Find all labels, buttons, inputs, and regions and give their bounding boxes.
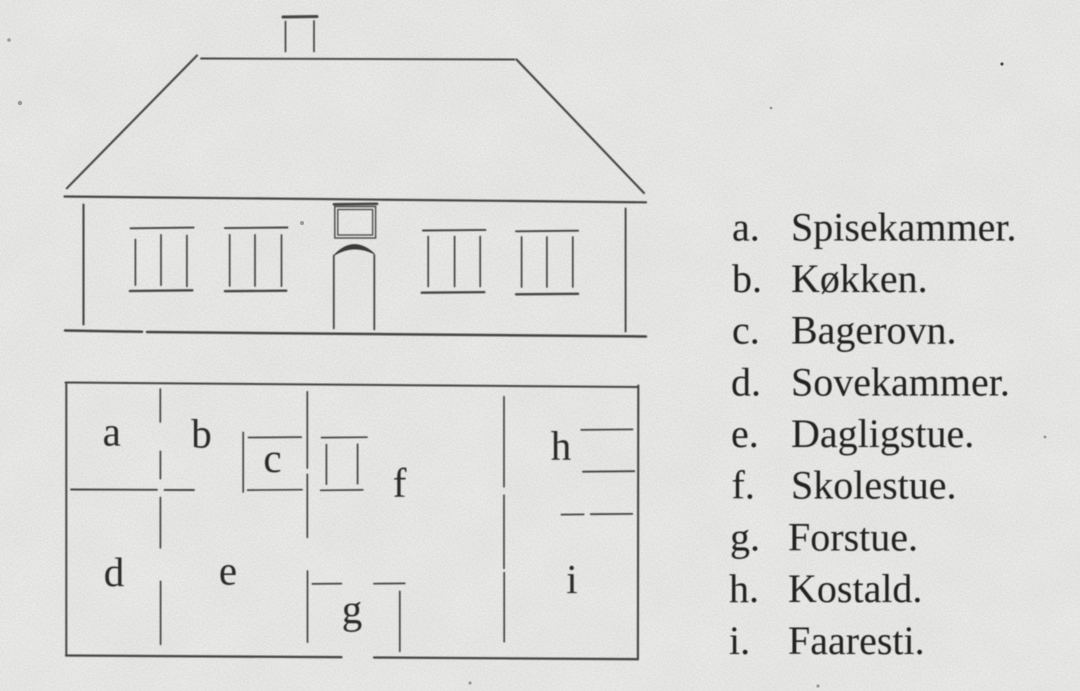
svg-text:h.: h.: [729, 566, 759, 611]
svg-text:b: b: [191, 410, 212, 456]
svg-text:c: c: [263, 435, 281, 481]
svg-text:i: i: [566, 556, 577, 602]
svg-text:f: f: [393, 460, 407, 506]
svg-text:Kostald.: Kostald.: [788, 566, 922, 611]
svg-text:Faaresti.: Faaresti.: [788, 618, 925, 663]
svg-text:g: g: [342, 586, 363, 632]
svg-text:c.: c.: [732, 308, 760, 353]
svg-text:e: e: [219, 547, 237, 593]
svg-text:b.: b.: [732, 256, 762, 301]
svg-text:Sovekammer.: Sovekammer.: [791, 359, 1010, 404]
svg-text:Forstue.: Forstue.: [788, 515, 918, 560]
svg-text:Bagerovn.: Bagerovn.: [791, 308, 957, 353]
svg-text:h: h: [551, 423, 572, 469]
svg-text:a: a: [103, 409, 121, 455]
svg-text:a.: a.: [732, 205, 760, 250]
svg-text:Skolestue.: Skolestue.: [791, 463, 957, 508]
svg-text:e.: e.: [731, 411, 759, 456]
svg-text:d.: d.: [731, 359, 761, 404]
svg-text:Køkken.: Køkken.: [791, 256, 928, 301]
svg-text:d: d: [104, 549, 125, 595]
svg-text:Dagligstue.: Dagligstue.: [791, 411, 974, 456]
svg-text:i.: i.: [729, 618, 750, 663]
svg-text:f.: f.: [732, 463, 755, 508]
svg-text:g.: g.: [730, 515, 760, 560]
svg-text:Spisekammer.: Spisekammer.: [791, 205, 1017, 250]
